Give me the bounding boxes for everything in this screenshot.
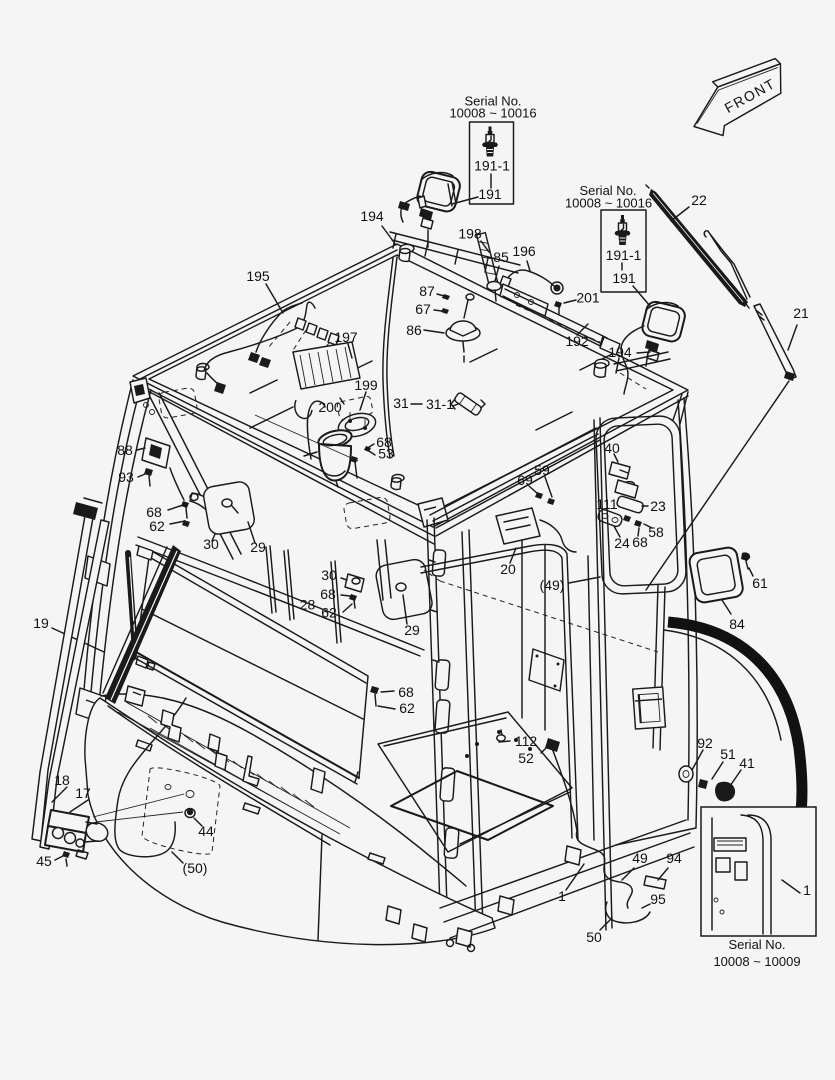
svg-text:84: 84 bbox=[729, 616, 745, 632]
svg-text:62: 62 bbox=[321, 605, 337, 621]
svg-text:40: 40 bbox=[604, 440, 620, 456]
svg-text:23: 23 bbox=[650, 498, 666, 514]
svg-text:53: 53 bbox=[378, 446, 394, 462]
svg-text:29: 29 bbox=[404, 622, 420, 638]
svg-text:30: 30 bbox=[321, 567, 337, 583]
svg-text:51: 51 bbox=[720, 746, 736, 762]
svg-text:192: 192 bbox=[565, 333, 589, 349]
svg-text:111: 111 bbox=[596, 496, 617, 512]
svg-text:45: 45 bbox=[36, 853, 52, 869]
svg-text:93: 93 bbox=[118, 469, 134, 485]
svg-text:1: 1 bbox=[558, 888, 566, 904]
svg-text:10008 ~ 10016: 10008 ~ 10016 bbox=[449, 106, 536, 121]
svg-text:31: 31 bbox=[393, 395, 409, 411]
svg-text:86: 86 bbox=[406, 322, 422, 338]
svg-text:10008 ~ 10016: 10008 ~ 10016 bbox=[565, 196, 652, 211]
svg-text:88: 88 bbox=[117, 442, 133, 458]
svg-text:200: 200 bbox=[318, 399, 342, 415]
svg-text:197: 197 bbox=[334, 329, 358, 345]
svg-text:195: 195 bbox=[246, 268, 270, 284]
svg-text:44: 44 bbox=[198, 823, 214, 839]
svg-text:68: 68 bbox=[398, 684, 414, 700]
svg-text:199: 199 bbox=[354, 377, 378, 393]
svg-text:28: 28 bbox=[300, 597, 316, 613]
svg-text:41: 41 bbox=[739, 755, 755, 771]
svg-text:10008 ~ 10009: 10008 ~ 10009 bbox=[713, 954, 800, 969]
svg-text:191-1: 191-1 bbox=[606, 247, 642, 263]
svg-text:201: 201 bbox=[576, 290, 600, 306]
svg-text:95: 95 bbox=[650, 891, 666, 907]
svg-text:68: 68 bbox=[632, 534, 648, 550]
svg-text:94: 94 bbox=[666, 850, 682, 866]
svg-text:19: 19 bbox=[33, 615, 49, 631]
svg-text:61: 61 bbox=[752, 575, 768, 591]
svg-text:68: 68 bbox=[320, 586, 336, 602]
svg-text:191-1: 191-1 bbox=[474, 158, 510, 174]
svg-text:194: 194 bbox=[360, 208, 384, 224]
svg-text:191: 191 bbox=[478, 186, 502, 202]
svg-text:49: 49 bbox=[632, 850, 648, 866]
svg-text:67: 67 bbox=[415, 301, 431, 317]
svg-text:20: 20 bbox=[500, 561, 516, 577]
svg-text:(49): (49) bbox=[540, 577, 565, 593]
svg-text:62: 62 bbox=[399, 700, 415, 716]
svg-text:198: 198 bbox=[458, 226, 482, 242]
svg-text:92: 92 bbox=[697, 735, 713, 751]
svg-text:17: 17 bbox=[75, 785, 91, 801]
svg-text:112: 112 bbox=[515, 733, 538, 749]
svg-text:31-1: 31-1 bbox=[426, 396, 454, 412]
svg-text:194: 194 bbox=[608, 344, 632, 360]
svg-text:30: 30 bbox=[203, 536, 219, 552]
svg-text:52: 52 bbox=[518, 750, 534, 766]
svg-text:18: 18 bbox=[54, 772, 70, 788]
svg-text:85: 85 bbox=[493, 249, 509, 265]
svg-text:1: 1 bbox=[803, 882, 811, 898]
svg-text:58: 58 bbox=[648, 524, 664, 540]
svg-text:24: 24 bbox=[614, 535, 630, 551]
svg-text:191: 191 bbox=[612, 270, 636, 286]
svg-text:22: 22 bbox=[691, 192, 707, 208]
svg-text:87: 87 bbox=[419, 283, 435, 299]
svg-text:50: 50 bbox=[586, 929, 602, 945]
svg-text:21: 21 bbox=[793, 305, 809, 321]
svg-text:69: 69 bbox=[517, 472, 533, 488]
svg-text:Serial No.: Serial No. bbox=[728, 937, 785, 952]
svg-text:59: 59 bbox=[534, 462, 550, 478]
svg-text:29: 29 bbox=[250, 539, 266, 555]
svg-text:(50): (50) bbox=[183, 860, 208, 876]
svg-text:196: 196 bbox=[512, 243, 536, 259]
svg-text:62: 62 bbox=[149, 518, 165, 534]
